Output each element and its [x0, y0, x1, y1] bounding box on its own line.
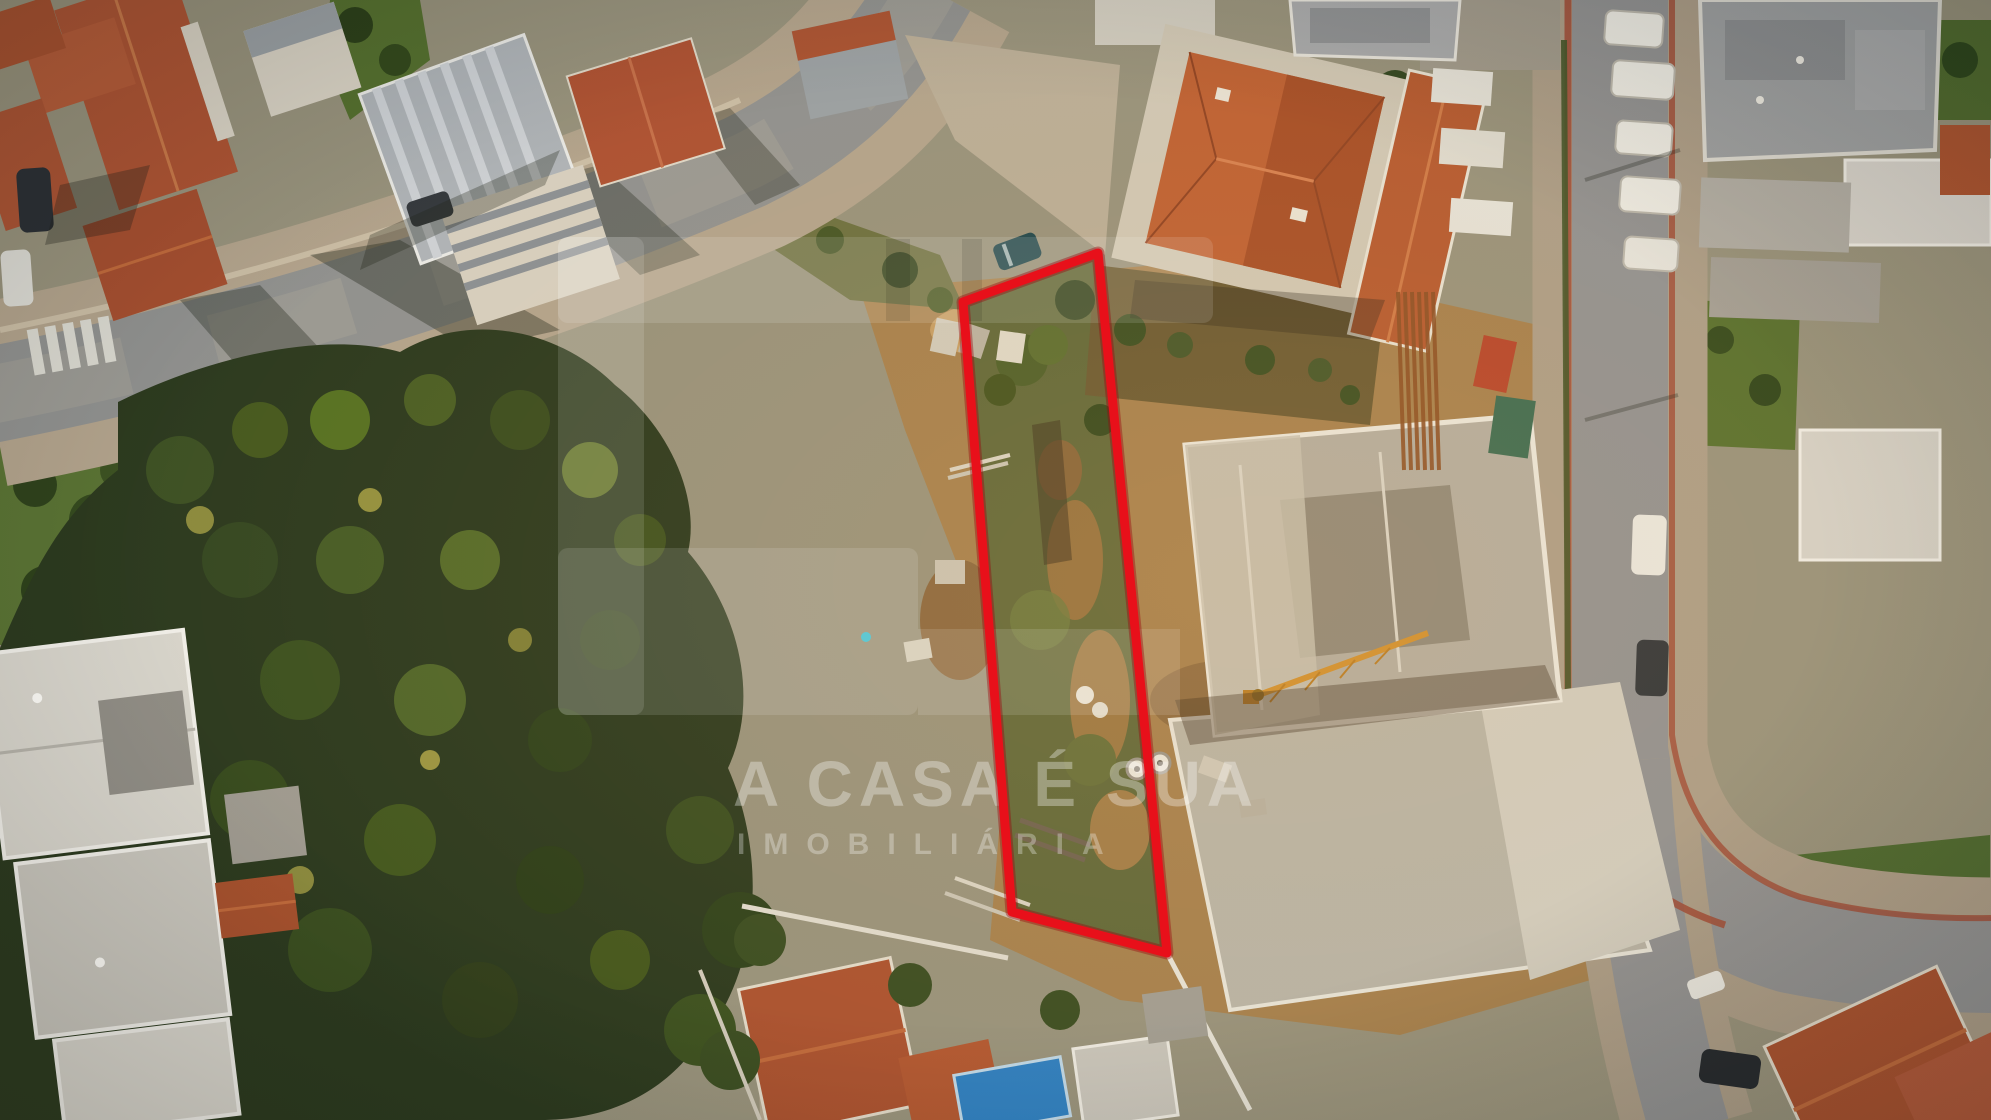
aerial-photo-canvas: A CASA É SUA IMOBILIÁRIA — [0, 0, 1991, 1120]
watermark-tagline-text: IMOBILIÁRIA — [737, 827, 1122, 861]
aerial-photo: A CASA É SUA IMOBILIÁRIA — [0, 0, 1991, 1120]
vignette-overlay — [0, 0, 1991, 1120]
